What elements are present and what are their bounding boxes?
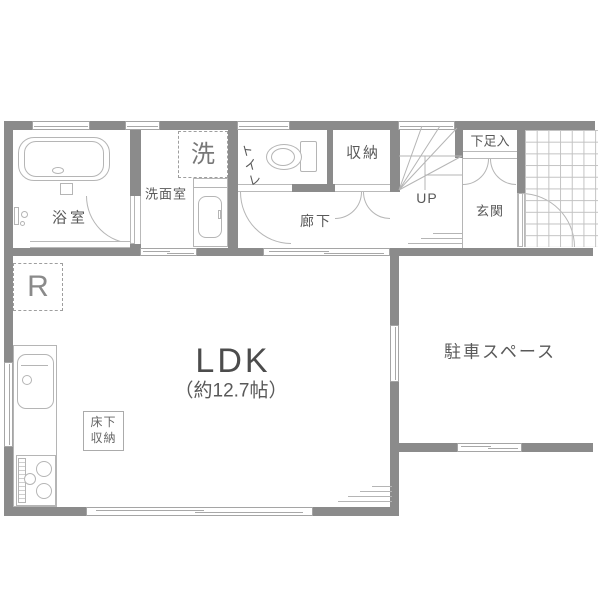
underfloor-storage-label-line2: 収納 <box>90 431 116 447</box>
shoe-closet-door-arc-right <box>490 159 516 185</box>
wall-segment <box>399 248 593 256</box>
shoe-closet-door-arc-left <box>463 159 489 185</box>
window <box>125 121 160 130</box>
bath-door-arc <box>86 196 134 244</box>
bathtub-faucet <box>60 183 73 195</box>
toilet-bowl-inner <box>271 148 295 166</box>
kitchen-faucet <box>21 365 48 366</box>
shoe-closet-label: 下足入 <box>470 135 509 148</box>
step-line <box>421 238 462 239</box>
wall-segment <box>522 443 593 452</box>
wall-segment <box>390 248 399 325</box>
hatch-line <box>372 486 392 487</box>
step-line <box>433 233 462 234</box>
window <box>4 362 13 447</box>
shower-knob <box>20 221 25 226</box>
bath-panel-line <box>30 241 130 248</box>
kitchen-drain <box>22 375 32 385</box>
wall-segment <box>4 507 86 516</box>
storage-label: 収納 <box>346 146 380 161</box>
bathtub-inner <box>24 141 104 177</box>
storage-door-opening <box>335 184 390 192</box>
sliding-door-washroom <box>140 248 197 256</box>
washing-machine-label: 洗 <box>191 143 215 167</box>
sliding-window <box>86 507 313 516</box>
entrance-door-leaf <box>518 193 523 247</box>
wall-segment <box>517 121 525 193</box>
wall-segment <box>130 130 141 196</box>
underfloor-storage-box: 床下 収納 <box>83 411 124 451</box>
wall-segment <box>455 121 595 130</box>
storage-door-arc-right <box>363 192 390 219</box>
floor-plan: 床下 収納 浴室 洗面室 洗 トイレ 収納 廊下 UP 下足入 玄関 LDK （… <box>0 0 608 613</box>
stairs-up-label: UP <box>416 191 437 205</box>
entrance-label: 玄関 <box>476 205 504 218</box>
parking-label: 駐車スペース <box>444 344 556 361</box>
hatch-line <box>360 491 392 492</box>
step-line <box>408 243 462 244</box>
ldk-label: LDK <box>195 344 270 378</box>
wall-segment <box>4 248 140 256</box>
hatch-line <box>338 501 392 502</box>
toilet-tank <box>300 141 317 172</box>
sliding-window <box>457 443 522 452</box>
window <box>390 325 399 382</box>
shoe-closet-opening <box>463 151 517 159</box>
wall-segment <box>90 121 125 130</box>
wall-segment <box>327 130 333 192</box>
wall-segment <box>4 447 13 516</box>
wall-segment <box>290 121 398 130</box>
underfloor-storage-label-line1: 床下 <box>90 415 116 431</box>
vanity-counter-line <box>193 187 228 188</box>
entrance-floor-edge <box>462 158 463 248</box>
hallway-label: 廊下 <box>300 214 332 228</box>
stove-burner <box>24 473 36 485</box>
wall-segment <box>390 443 457 452</box>
refrigerator-label: R <box>27 272 49 302</box>
washroom-label: 洗面室 <box>145 188 187 201</box>
shower-faucet <box>14 207 19 225</box>
toilet-door-arc <box>240 192 291 244</box>
sliding-door-hallway <box>263 248 390 256</box>
toilet-door-opening <box>238 184 292 192</box>
wall-segment <box>160 121 237 130</box>
bath-door-leaf <box>134 196 135 244</box>
bathroom-label: 浴室 <box>52 211 88 226</box>
hatch-line <box>348 496 392 497</box>
bathtub-drain <box>52 167 64 174</box>
shower-head <box>21 211 28 218</box>
stove-burner <box>36 461 52 477</box>
wall-segment <box>228 130 238 256</box>
stairs <box>399 124 462 236</box>
wall-segment <box>313 507 399 516</box>
window <box>237 121 290 130</box>
window <box>32 121 90 130</box>
toilet-label: トイレ <box>238 143 262 190</box>
vanity-handle <box>218 210 221 219</box>
porch-tile <box>525 130 598 247</box>
ldk-area-label: （約12.7帖） <box>175 382 288 401</box>
storage-door-arc-left <box>335 192 362 219</box>
stove-burner <box>36 483 52 499</box>
wall-segment <box>4 121 13 362</box>
